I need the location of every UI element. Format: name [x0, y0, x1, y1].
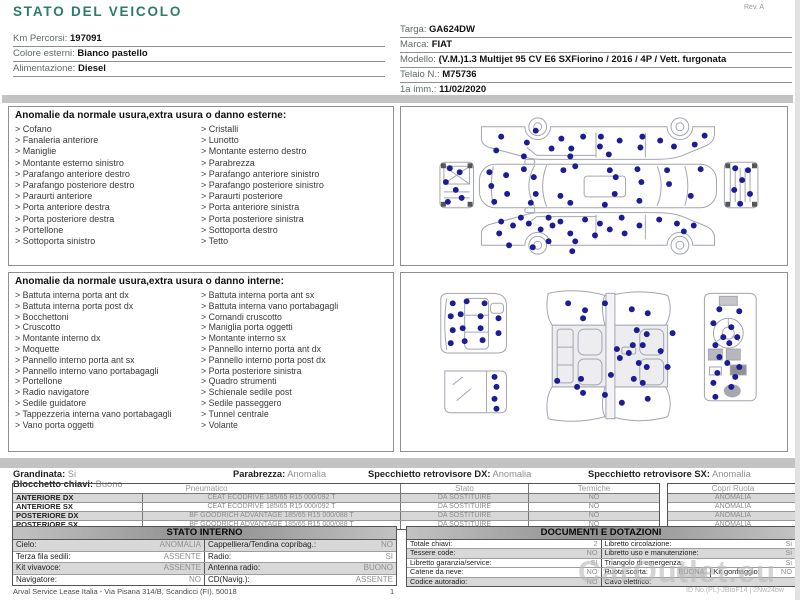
damage-dot	[645, 396, 651, 402]
table-row: Libretto garanzia/service:SI Triangolo d…	[407, 559, 795, 568]
damage-dot	[636, 360, 642, 366]
specchietto-dx: Specchietto retrovisore DX: Anomalia	[368, 469, 531, 479]
damage-dot	[636, 198, 642, 204]
damage-dot	[726, 340, 732, 346]
damage-dot	[482, 300, 488, 306]
anomaly-item: Parafango posteriore destro	[15, 180, 201, 191]
damage-dot	[634, 327, 640, 333]
damage-dot	[626, 350, 632, 356]
alimentazione-row: Alimentazione: Diesel	[13, 62, 385, 77]
damage-dot	[728, 384, 734, 390]
vehicle-condition-report: STATO DEL VEICOLO Rev. A Km Percorsi: 19…	[0, 0, 800, 600]
damage-dot	[582, 307, 588, 313]
damage-dot	[557, 219, 563, 225]
interior-diagram-panel	[400, 272, 788, 452]
damage-dot	[572, 238, 578, 244]
damage-dot	[450, 300, 456, 306]
tyre-header-termiche: Termiche	[529, 484, 659, 493]
damage-dot	[712, 394, 718, 400]
damage-dot	[602, 202, 608, 208]
damage-dot	[443, 179, 449, 185]
damage-dot	[457, 169, 463, 175]
anomaly-item: Sottoporta sinistro	[15, 236, 201, 247]
damage-dot	[459, 195, 465, 201]
damage-dot	[518, 215, 524, 221]
tyre-header-stato: Stato	[401, 484, 529, 493]
damage-dot	[622, 230, 628, 236]
damage-dot	[496, 230, 502, 236]
table-row: Tessere code:NO Libretto uso e manutenzi…	[407, 549, 795, 558]
revision-label: Rev. A	[744, 4, 764, 11]
anomaly-item: Pannello interno vano portabagagli	[15, 366, 201, 377]
tyre-stato: DA SOSTITUIRE	[401, 494, 529, 502]
page-number: 1	[390, 587, 394, 596]
telaio-row: Telaio N.: M75736	[400, 68, 792, 83]
top-view	[479, 159, 716, 212]
damage-dot	[445, 199, 451, 205]
damage-dot	[606, 151, 612, 157]
damage-dot	[464, 298, 470, 304]
damage-dot	[710, 380, 716, 386]
cabin-plan	[547, 291, 670, 421]
damage-dot	[492, 396, 498, 402]
damage-dot	[565, 300, 571, 306]
copri-ruota-value: ANOMALIA	[668, 494, 798, 503]
separator-bar	[0, 458, 795, 468]
damage-dot	[510, 223, 516, 229]
anomaly-item: Quadro strumenti	[201, 376, 387, 387]
damage-dot	[554, 378, 560, 384]
side-view-right	[481, 118, 714, 159]
damage-dot	[598, 134, 604, 140]
exterior-diagram-panel	[400, 106, 788, 266]
tyre-header-pneumatico: Pneumatico	[13, 484, 401, 493]
anomaly-item: Sedile guidatore	[15, 398, 201, 409]
documenti-dotazioni-table: DOCUMENTI E DOTAZIONI Totale chiavi:2 Li…	[406, 526, 796, 587]
anomaly-item: Battuta interna porta post dx	[15, 301, 201, 312]
damage-dot	[658, 348, 664, 354]
damage-dot	[524, 140, 530, 146]
damage-dot	[546, 238, 552, 244]
damage-dot	[638, 179, 644, 185]
front-view	[440, 162, 474, 207]
anomaly-item: Sottoporta destro	[201, 225, 387, 236]
damage-dot	[629, 306, 635, 312]
copri-ruota-value: ANOMALIA	[668, 503, 798, 512]
anomaly-item: Comandi cruscotto	[201, 312, 387, 323]
exterior-anomalies-panel: Anomalie da normale usura,extra usura o …	[8, 106, 394, 266]
tyre-row: ANTERIORE DX CEAT ECODRIVE 185/65 R15 00…	[13, 494, 659, 503]
damage-dot	[731, 187, 737, 193]
damage-dot	[702, 133, 708, 139]
damage-dot	[617, 138, 623, 144]
vehicle-info-right: Targa: GA624DW Marca: FIAT Modello: (V.M…	[400, 23, 792, 98]
exterior-anomalies-col1: CofanoFanaleria anterioreManiglieMontant…	[15, 124, 201, 247]
damage-dot	[448, 340, 454, 346]
table-row: Navigatore:NO CD(Navig.):ASSENTE	[13, 575, 396, 586]
damage-dot	[578, 376, 584, 382]
stato-interno-header: STATO INTERNO	[13, 527, 396, 540]
side-view-left	[481, 213, 714, 254]
footer-address: Arval Service Lease Italia - Via Pisana …	[13, 587, 237, 596]
anomaly-item: Montante esterno sinistro	[15, 158, 201, 169]
anomaly-item: Porta posteriore sinistra	[201, 366, 387, 377]
damage-dot	[574, 384, 580, 390]
tyre-spec: BF GOODRICH ADVANTAGE 185/65 R15 000/088…	[143, 512, 401, 520]
damage-dot	[674, 221, 680, 227]
damage-dot	[572, 163, 578, 169]
table-row: Terza fila sedili:ASSENTE Radio:SI	[13, 552, 396, 564]
anomaly-item: Montante interno dx	[15, 333, 201, 344]
damage-dot	[608, 372, 614, 378]
anomaly-item: Battuta interna porta ant dx	[15, 290, 201, 301]
table-row: Catene da neve:NO Ruota scorta:BUONA Kit…	[407, 568, 795, 577]
exterior-anomalies-col2: CristalliLunottoMontante esterno destroP…	[201, 124, 387, 247]
damage-dot	[546, 215, 552, 221]
damage-dot	[637, 145, 643, 151]
damage-dot	[636, 223, 642, 229]
damage-dot	[640, 342, 646, 348]
tyre-table: Pneumatico Stato Termiche ANTERIORE DX C…	[12, 483, 799, 530]
interior-damage-diagram	[401, 273, 787, 451]
damage-dot	[745, 167, 751, 173]
damage-dot	[747, 191, 753, 197]
anomaly-item: Montante interno sx	[201, 333, 387, 344]
anomaly-item: Maniglie	[15, 146, 201, 157]
damage-dot	[526, 221, 532, 227]
damage-dot	[688, 193, 694, 199]
damage-dot	[716, 306, 722, 312]
anomaly-item: Radio navigatore	[15, 387, 201, 398]
separator-bar	[2, 95, 793, 103]
damage-dot	[491, 199, 497, 205]
damage-dot	[639, 134, 645, 140]
anomaly-item: Cofano	[15, 124, 201, 135]
tyre-termiche: NO	[529, 512, 659, 520]
damage-dot	[665, 364, 671, 370]
damage-dot	[498, 134, 504, 140]
tyre-row: ANTERIORE SX CEAT ECODRIVE 185/65 R15 00…	[13, 503, 659, 512]
damage-dot	[493, 147, 499, 153]
damage-dot	[670, 330, 676, 336]
colore-esterni-row: Colore esterni: Bianco pastello	[13, 47, 385, 62]
anomaly-item: Pannello interno porta ant dx	[201, 344, 387, 355]
modello-row: Modello: (V.M.)1.3 Multijet 95 CV E6 SXF…	[400, 53, 792, 68]
damage-dot	[612, 191, 618, 197]
specchietto-sx: Specchietto retrovisore SX: Anomalia	[588, 469, 751, 479]
anomaly-item: Parafango anteriore destro	[15, 169, 201, 180]
exterior-damage-dots	[443, 128, 753, 254]
damage-dot	[531, 174, 537, 180]
damage-dot	[498, 219, 504, 225]
damage-dot	[462, 338, 468, 344]
anomaly-item: Cristalli	[201, 124, 387, 135]
copri-ruota-value: ANOMALIA	[668, 512, 798, 521]
damage-dot	[592, 232, 598, 238]
damage-dot	[480, 337, 486, 343]
damage-dot	[494, 406, 500, 412]
anomaly-item: Schienale sedile post	[201, 387, 387, 398]
tyre-termiche: NO	[529, 503, 659, 511]
anomaly-item: Parafango anteriore sinistro	[201, 169, 387, 180]
tyre-termiche: NO	[529, 494, 659, 502]
damage-dot	[692, 142, 698, 148]
documenti-dotazioni-header: DOCUMENTI E DOTAZIONI	[407, 527, 795, 540]
anomaly-item: Bocchettoni	[15, 312, 201, 323]
damage-dot	[521, 166, 527, 172]
table-row: Cielo:ANOMALIA Cappelliera/Tendina copri…	[13, 540, 396, 552]
damage-dot	[656, 217, 662, 223]
damage-dot	[486, 169, 492, 175]
damage-dot	[458, 311, 464, 317]
anomaly-item: Porta posteriore destra	[15, 214, 201, 225]
damage-dot	[567, 230, 573, 236]
damage-dot	[734, 334, 740, 340]
anomaly-item: Tunnel centrale	[201, 409, 387, 420]
damage-dot	[580, 134, 586, 140]
km-percorsi-row: Km Percorsi: 197091	[13, 32, 385, 47]
anomaly-item: Montante esterno destro	[201, 146, 387, 157]
damage-dot	[460, 325, 466, 331]
damage-dot	[613, 174, 619, 180]
grandinata: Grandinata: Si	[13, 469, 76, 479]
anomaly-item: Pannello interno porta post dx	[201, 355, 387, 366]
anomaly-item: Porta anteriore destra	[15, 202, 201, 213]
interior-anomalies-col2: Battuta interna porta ant sxBattuta inte…	[201, 290, 387, 430]
damage-dot	[558, 136, 564, 142]
damage-dot	[602, 300, 608, 306]
damage-dot	[664, 167, 670, 173]
exterior-damage-diagram	[401, 107, 787, 265]
damage-dot	[478, 313, 484, 319]
damage-dot	[492, 374, 498, 380]
damage-dot	[644, 364, 650, 370]
damage-dot	[630, 342, 636, 348]
tyre-spec: CEAT ECODRIVE 185/65 R15 000/092 T	[143, 503, 401, 511]
damage-dot	[739, 177, 745, 183]
anomaly-item: Fanaleria anteriore	[15, 135, 201, 146]
damage-dot	[728, 324, 734, 330]
damage-dot	[530, 244, 536, 250]
anomaly-item: Portellone	[15, 376, 201, 387]
page-edge	[795, 0, 800, 600]
damage-dot	[580, 390, 586, 396]
watermark-id: ID No.(PL)-JBtoF14 | 2Nw24bw	[686, 587, 784, 594]
damage-dot	[619, 400, 625, 406]
copri-ruota-table: Copri Ruota ANOMALIA ANOMALIA ANOMALIA A…	[667, 483, 799, 530]
damage-dot	[569, 248, 575, 254]
interior-anomalies-panel: Anomalie da normale usura,extra usura o …	[8, 272, 394, 452]
stato-interno-table: STATO INTERNO Cielo:ANOMALIA Cappelliera…	[12, 526, 397, 586]
damage-dot	[582, 217, 588, 223]
damage-dot	[710, 320, 716, 326]
anomaly-item: Porta anteriore sinistra	[201, 202, 387, 213]
damage-dot	[736, 364, 742, 370]
damage-dot	[453, 187, 459, 193]
anomaly-item: Tetto	[201, 236, 387, 247]
tyre-stato: DA SOSTITUIRE	[401, 503, 529, 511]
damage-dot	[602, 392, 608, 398]
damage-dot	[506, 242, 512, 248]
anomaly-item: Battuta interna porta ant sx	[201, 290, 387, 301]
damage-dot	[528, 200, 534, 206]
damage-dot	[714, 370, 720, 376]
damage-dot	[580, 315, 586, 321]
anomaly-item: Cruscotto	[15, 322, 201, 333]
damage-dot	[681, 228, 687, 234]
damage-dot	[521, 153, 527, 159]
anomaly-item: Vano porta oggetti	[15, 420, 201, 431]
damage-dot	[607, 226, 613, 232]
parabrezza: Parabrezza: Anomalia	[233, 469, 326, 479]
rear-view	[724, 162, 758, 207]
damage-dot	[496, 315, 502, 321]
page-title: STATO DEL VEICOLO	[13, 4, 182, 19]
damage-dot	[448, 313, 454, 319]
damage-dot	[488, 183, 494, 189]
damage-dot	[657, 138, 663, 144]
damage-dot	[450, 327, 456, 333]
damage-dot	[533, 128, 539, 134]
anomaly-item: Parafango posteriore sinistro	[201, 180, 387, 191]
damage-dot	[634, 166, 640, 172]
damage-dot	[496, 330, 502, 336]
tyre-position: POSTERIORE DX	[13, 512, 143, 520]
damage-dot	[712, 342, 718, 348]
damage-dot	[644, 331, 650, 337]
damage-dot	[504, 191, 510, 197]
anomaly-item: Portellone	[15, 225, 201, 236]
damage-dot	[724, 360, 730, 366]
damage-dot	[698, 166, 704, 172]
anomaly-item: Paraurti posteriore	[201, 191, 387, 202]
damage-dot	[666, 181, 672, 187]
anomaly-item: Battuta interna vano portabagagli	[201, 301, 387, 312]
damage-dot	[732, 374, 738, 380]
exterior-anomalies-title: Anomalie da normale usura,extra usura o …	[15, 110, 387, 121]
anomaly-item: Maniglia porta oggetti	[201, 322, 387, 333]
damage-dot	[557, 193, 563, 199]
damage-dot	[614, 346, 620, 352]
anomaly-item: Lunotto	[201, 135, 387, 146]
damage-dot	[568, 146, 574, 152]
table-row: Totale chiavi:2 Libretto circolazione:Si	[407, 540, 795, 549]
damage-dot	[549, 146, 555, 152]
damage-dot	[640, 380, 646, 386]
damage-dot	[597, 221, 603, 227]
targa-row: Targa: GA624DW	[400, 23, 792, 38]
tyre-position: ANTERIORE SX	[13, 503, 143, 511]
damage-dot	[478, 325, 484, 331]
damage-dot	[716, 354, 722, 360]
damage-dot	[560, 167, 566, 173]
damage-dot	[538, 226, 544, 232]
anomaly-item: Moquette	[15, 344, 201, 355]
marca-row: Marca: FIAT	[400, 38, 792, 53]
damage-dot	[567, 153, 573, 159]
damage-dot	[494, 384, 500, 390]
damage-dot	[447, 165, 453, 171]
damage-dot	[533, 191, 539, 197]
tyre-spec: CEAT ECODRIVE 185/65 R15 000/092 T	[143, 494, 401, 502]
interior-anomalies-col1: Battuta interna porta ant dxBattuta inte…	[15, 290, 201, 430]
damage-dot	[567, 200, 573, 206]
anomaly-item: Pannello interno porta ant sx	[15, 355, 201, 366]
damage-dot	[737, 201, 743, 207]
anomaly-item: Paraurti anteriore	[15, 191, 201, 202]
damage-dot	[691, 223, 697, 229]
damage-dot	[503, 172, 509, 178]
tyre-position: ANTERIORE DX	[13, 494, 143, 502]
damage-dot	[597, 144, 603, 150]
damage-dot	[631, 376, 637, 382]
vehicle-info-left: Km Percorsi: 197091 Colore esterni: Bian…	[13, 32, 385, 77]
damage-dot	[619, 215, 625, 221]
damage-dot	[617, 355, 623, 361]
tyre-stato: DA SOSTITUIRE	[401, 512, 529, 520]
copri-ruota-header: Copri Ruota	[668, 484, 798, 494]
anomaly-item: Porta posteriore sinistra	[201, 214, 387, 225]
interior-anomalies-title: Anomalie da normale usura,extra usura o …	[15, 276, 387, 287]
damage-dot	[607, 167, 613, 173]
table-row: Codice autoradio:NO Cavo elettrico:	[407, 578, 795, 586]
table-row: Kit vivavoce:ASSENTE Antenna radio:BUONO	[13, 563, 396, 575]
tyre-row: POSTERIORE DX BF GOODRICH ADVANTAGE 185/…	[13, 512, 659, 521]
damage-dot	[732, 165, 738, 171]
anomaly-item: Parabrezza	[201, 158, 387, 169]
anomaly-item: Volante	[201, 420, 387, 431]
anomaly-item: Sedile passeggero	[201, 398, 387, 409]
damage-dot	[550, 223, 556, 229]
damage-dot	[720, 334, 726, 340]
anomaly-item: Tappezzeria interna vano portabagagli	[15, 409, 201, 420]
damage-dot	[736, 308, 742, 314]
damage-dot	[645, 310, 651, 316]
damage-dot	[671, 144, 677, 150]
